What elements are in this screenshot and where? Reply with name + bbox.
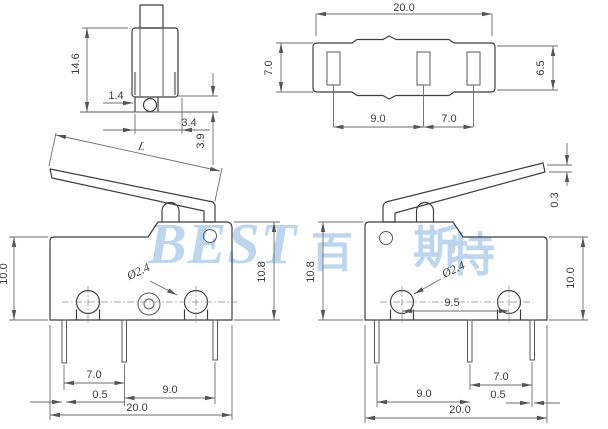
dim-label-body-height-right: 10.0 [565,267,577,288]
dim-label-hole-dia-right: Ø2.4 [439,258,467,281]
pin-left-2 [122,320,127,362]
lever-left [50,169,215,222]
side-pivot-hole [144,99,157,112]
side-body-contact-bars [135,72,175,95]
centerlines-left-view [62,286,237,324]
terminal-2 [417,52,430,85]
microswitch-technical-drawing: BEST 百 斯 特 14.6 1.4 [0,0,608,429]
plunger-dome-right [417,203,434,223]
lever-right [383,163,545,222]
dim-label-side-height: 14.6 [70,53,82,74]
ext-10-8-right [318,222,363,320]
side-body-inner-lines [140,29,163,96]
pin-left-1 [62,320,67,363]
drawing-canvas: 14.6 1.4 3.4 3.9 20.0 7.0 [0,0,608,429]
side-extension-lines [82,28,218,134]
front-view-right: 0.3 Ø2.4 9.5 10.8 10.0 9.0 7.0 0.5 [305,143,588,423]
dim-label-pin-pitch-right-b: 7.0 [493,371,508,383]
dim-label-overall-height-left: 10.8 [256,261,268,282]
dim-label-width-left: 20.0 [126,402,147,414]
plunger-dome-left [162,203,179,223]
dim-label-hole-dia-left: Ø2.4 [124,260,152,283]
boss-inner-circle [144,299,154,309]
pivot-hole-right-view [380,232,393,245]
dim-label-terminal-pitch-left: 9.0 [370,113,385,125]
ext-10-0-left [9,237,48,320]
dim-label-lever-tip-thickness: 0.3 [549,192,561,207]
dim-label-top-width: 20.0 [393,2,414,14]
dim-label-terminal-pitch-right: 7.0 [441,113,456,125]
dim-label-pin-width-left: 0.5 [92,389,107,401]
boss-outer-circle [138,293,160,315]
dim-label-body-depth: 7.0 [263,60,275,75]
plunger-button [140,5,163,28]
dim-label-base-height: 3.9 [195,133,207,148]
terminal-1 [327,52,340,85]
dim-label-lever-length: L [136,138,147,153]
pin-left-3 [213,320,218,360]
pivot-hole-left-view [204,230,217,243]
leader-hole-dia-left [150,281,177,295]
terminal-3 [467,52,480,85]
leader-hole-dia-right [414,279,441,294]
dim-label-body-height-left: 10.0 [0,263,10,284]
dim-label-pivot-offset: 1.4 [108,90,123,102]
pin-right-3 [530,320,535,360]
side-body [132,28,178,97]
lever-tip-ref-lines [547,165,572,172]
dim-label-overall-height-right: 10.8 [305,261,317,282]
dim-label-width-right: 20.0 [449,404,470,416]
dim-label-button-offset: 3.4 [181,117,196,129]
dim-label-pin-pitch-left-b: 9.0 [162,384,177,396]
pin-right-2 [468,320,473,362]
dim-label-hole-pitch: 9.5 [444,297,459,309]
dim-label-pin-pitch-left-a: 7.0 [86,369,101,381]
pin-right-1 [375,320,380,363]
dim-label-inner-depth: 6.5 [535,60,547,75]
front-view-left: L Ø2.4 10.0 10.8 7.0 0.5 9.0 20.0 [0,133,280,420]
dim-label-pin-width-right: 0.5 [490,389,505,401]
top-view: 20.0 7.0 6.5 9.0 7.0 [263,2,558,127]
dim-label-pin-pitch-right-a: 9.0 [416,388,431,400]
